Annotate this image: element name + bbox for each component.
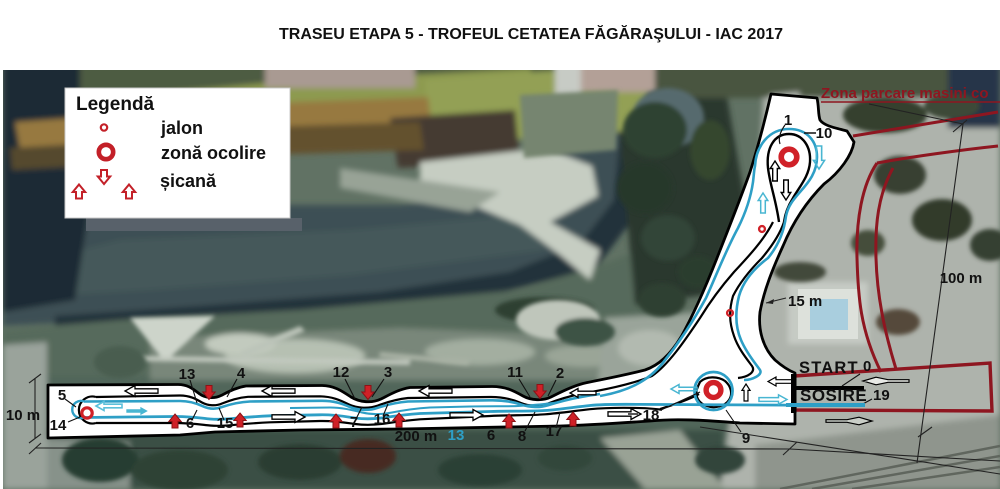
svg-text:0: 0 xyxy=(863,358,871,375)
svg-text:10: 10 xyxy=(816,125,833,142)
svg-text:1: 1 xyxy=(784,112,792,129)
svg-text:4: 4 xyxy=(237,365,246,382)
svg-text:9: 9 xyxy=(742,430,750,447)
svg-text:START: START xyxy=(799,359,859,377)
svg-text:5: 5 xyxy=(58,387,66,404)
svg-text:SOSIRE: SOSIRE xyxy=(800,386,867,405)
svg-text:6: 6 xyxy=(487,427,495,444)
svg-text:13: 13 xyxy=(448,427,465,444)
svg-text:Legendă: Legendă xyxy=(76,94,155,115)
svg-text:14: 14 xyxy=(50,417,67,434)
svg-text:17: 17 xyxy=(546,423,563,440)
svg-text:7: 7 xyxy=(350,414,358,431)
svg-text:15 m: 15 m xyxy=(788,293,822,310)
svg-text:2: 2 xyxy=(556,365,564,382)
svg-text:jalon: jalon xyxy=(160,118,203,138)
svg-text:19: 19 xyxy=(873,387,890,404)
svg-text:100 m: 100 m xyxy=(940,270,983,287)
svg-text:200 m: 200 m xyxy=(395,428,438,445)
svg-text:6: 6 xyxy=(186,415,194,432)
svg-text:13: 13 xyxy=(179,366,196,383)
svg-text:11: 11 xyxy=(507,364,523,381)
svg-text:10 m: 10 m xyxy=(6,407,40,424)
svg-text:3: 3 xyxy=(384,364,392,381)
svg-text:Zona parcare masini co: Zona parcare masini co xyxy=(821,85,989,102)
svg-text:TRASEU ETAPA 5 - TROFEUL CETAT: TRASEU ETAPA 5 - TROFEUL CETATEA FĂGĂRAŞ… xyxy=(279,24,783,43)
svg-text:șicană: șicană xyxy=(160,171,217,191)
svg-text:zonă ocolire: zonă ocolire xyxy=(161,143,266,163)
svg-text:15: 15 xyxy=(217,415,234,432)
svg-text:12: 12 xyxy=(333,364,350,381)
svg-text:8: 8 xyxy=(518,428,526,445)
svg-text:18: 18 xyxy=(643,407,660,424)
svg-text:16: 16 xyxy=(374,411,391,428)
